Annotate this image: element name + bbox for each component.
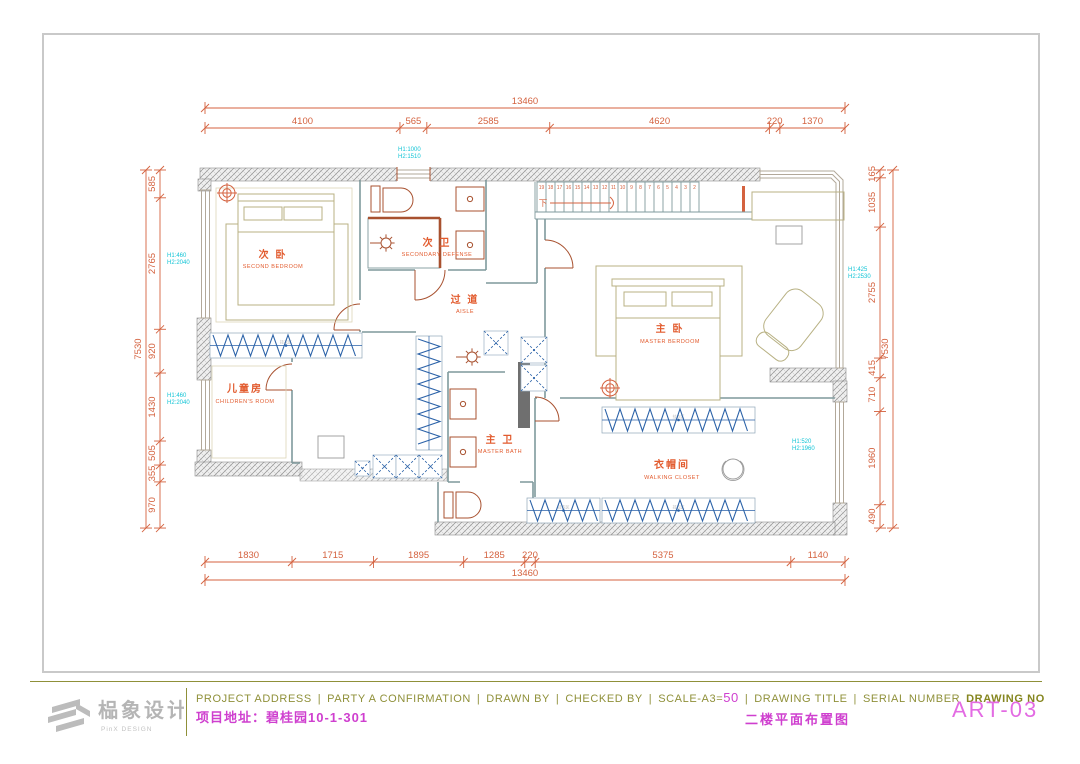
logo-mark-icon (48, 699, 90, 732)
note-left-upper-h1: H1:460 (167, 253, 187, 259)
dim-label: 4620 (649, 116, 670, 127)
stair-number: 18 (548, 185, 554, 191)
dim-label: 1285 (484, 550, 505, 561)
dim-label: 2765 (147, 253, 158, 274)
note-top-h1: H1:1000 (398, 147, 421, 153)
dim-label: 5375 (652, 550, 673, 561)
dim-label: 565 (405, 116, 421, 127)
stair-number: 11 (611, 185, 616, 191)
drawing-title-value: 二楼平面布置图 (745, 709, 850, 728)
dim-label: 920 (147, 343, 158, 359)
dim-label: 505 (147, 445, 158, 461)
stairs-down-label: 下 (539, 198, 548, 208)
stair-number: 16 (566, 185, 572, 191)
title-block-divider-line (30, 681, 1042, 682)
label-aisle-en: AISLE (456, 309, 474, 315)
dim-label: 585 (147, 176, 158, 192)
note-right-upper-h2: H2:2530 (848, 274, 871, 280)
sink-basin (450, 389, 476, 419)
note-right-upper-h1: H1:425 (848, 267, 868, 273)
stair-number: 12 (602, 185, 608, 191)
stair-number: 8 (639, 185, 642, 191)
dim-label: 1140 (808, 550, 828, 561)
stair-number: 13 (593, 185, 599, 191)
staircase: 1918171615141312111098765432下 (535, 182, 752, 219)
shower-head-icon (467, 352, 477, 362)
stair-number: 5 (666, 185, 669, 191)
label-second-bedroom-cn: 次 卧 (259, 248, 288, 261)
label-children-room-cn: 儿童房 (226, 382, 263, 395)
drawing-sheet: 1918171615141312111098765432下 (0, 0, 1080, 764)
field-drawn-by: DRAWN BY (486, 693, 550, 705)
stair-number: 17 (557, 185, 563, 191)
label-master-bath-cn: 主 卫 (486, 433, 515, 446)
dim-label: 1430 (147, 396, 158, 417)
dim-label: 13460 (512, 96, 538, 107)
shower-head-icon (381, 238, 391, 248)
dim-label: 1830 (238, 550, 259, 561)
sink-basin (456, 187, 484, 211)
stair-number: 15 (575, 185, 581, 191)
stair-number: 10 (620, 185, 626, 191)
note-top-h2: H2:1510 (398, 154, 421, 160)
chaise-lounge (750, 284, 828, 366)
project-address-value: 项目地址：碧桂园10-1-301 (196, 707, 368, 726)
note-left-lower-h1: H1:460 (167, 393, 187, 399)
stair-number: 6 (657, 185, 660, 191)
field-party-a-confirmation: PARTY A CONFIRMATION (327, 693, 471, 705)
dim-label: 415 (867, 360, 878, 376)
label-aisle-cn: 过 道 (451, 293, 480, 306)
logo-subtitle: PinX DESIGN (101, 726, 152, 733)
field-project-address: PROJECT ADDRESS (196, 693, 312, 705)
dim-label: 970 (147, 497, 158, 513)
note-left-lower-h2: H2:2040 (167, 400, 190, 406)
label-secondary-bath-cn: 次 卫 (423, 236, 452, 249)
stair-number: 3 (684, 185, 687, 191)
dim-label: 165 (867, 166, 878, 182)
label-walking-closet-en: WALKING CLOSET (644, 475, 700, 481)
floor-plan-canvas: 1918171615141312111098765432下 (0, 0, 1080, 682)
dim-label: 710 (867, 387, 878, 403)
dim-label: 355 (147, 466, 158, 482)
dim-label: 2585 (478, 116, 499, 127)
dim-label: 7530 (133, 338, 144, 359)
title-block-vertical-divider (186, 688, 187, 736)
dim-label: 1715 (322, 550, 343, 561)
dim-label: 7530 (880, 338, 891, 359)
label-secondary-bath-en: SECONDARY DEFENSE (402, 252, 473, 258)
note-left-upper-h2: H2:2040 (167, 260, 190, 266)
dim-label: 490 (867, 508, 878, 524)
dim-label: 2755 (867, 282, 878, 303)
sink-basin (450, 437, 476, 467)
company-logo: 榀象设计 PinX DESIGN (46, 691, 184, 741)
field-scale: SCALE-A3=50 (658, 690, 739, 705)
logo-name: 榀象设计 (98, 698, 184, 722)
note-right-lower-h2: H2:1960 (792, 446, 815, 452)
label-second-bedroom-en: SECOND BEDROOM (243, 264, 303, 270)
stair-number: 14 (584, 185, 590, 191)
title-block-header-row: PROJECT ADDRESS| PARTY A CONFIRMATION| D… (196, 690, 1045, 705)
drawing-no-value: ART-03 (952, 697, 1038, 723)
dim-label: 13460 (512, 568, 538, 579)
stair-number: 4 (675, 185, 678, 191)
dim-label: 1035 (867, 192, 878, 213)
label-master-bedroom-cn: 主 卧 (656, 322, 685, 335)
dim-label: 1895 (408, 550, 429, 561)
stair-number: 7 (648, 185, 651, 191)
stair-number: 19 (539, 185, 545, 191)
dim-label: 1370 (802, 116, 823, 127)
label-master-bath-en: MASTER BATH (478, 449, 522, 455)
stair-number: 2 (693, 185, 696, 191)
label-walking-closet-cn: 衣帽间 (654, 458, 690, 471)
label-master-bedroom-en: MASTER BERDOOM (640, 339, 700, 345)
dim-label: 1960 (867, 448, 878, 469)
note-right-lower-h1: H1:520 (792, 439, 812, 445)
field-serial-number: SERIAL NUMBER (863, 693, 960, 705)
scale-value: 50 (723, 690, 739, 705)
field-drawing-title: DRAWING TITLE (754, 693, 847, 705)
stair-number: 9 (630, 185, 633, 191)
label-children-room-en: CHILDREN'S ROOM (216, 399, 275, 405)
dim-label: 4100 (292, 116, 313, 127)
field-checked-by: CHECKED BY (565, 693, 643, 705)
